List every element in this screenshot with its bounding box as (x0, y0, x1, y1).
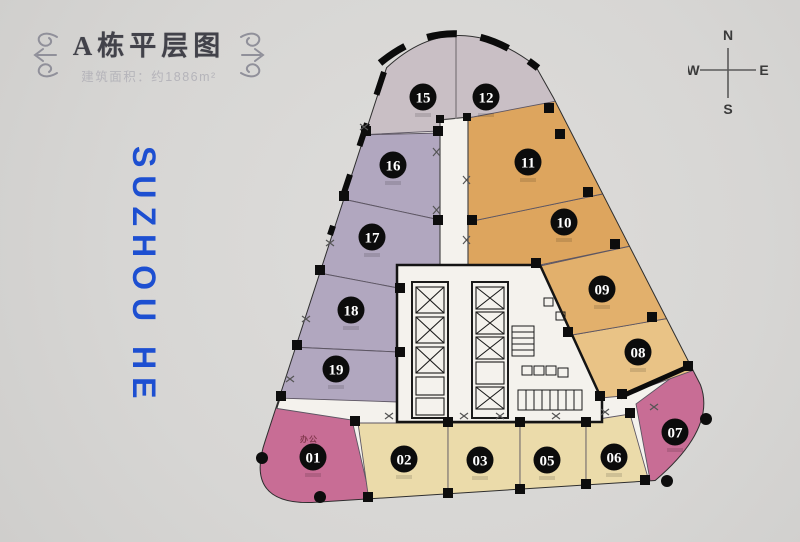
unit-number: 17 (365, 230, 381, 246)
unit-area-smudge (328, 385, 344, 389)
unit-number: 06 (607, 450, 623, 466)
unit-area-smudge (556, 238, 572, 242)
unit-area-smudge (305, 473, 321, 477)
unit-area-smudge (472, 476, 488, 480)
compass-east: E (759, 62, 768, 78)
unit-number: 05 (540, 453, 555, 469)
flourish-right-icon (238, 27, 272, 83)
unit-number: 03 (473, 453, 488, 469)
unit-number: 11 (521, 155, 535, 171)
unit-number: 01 (306, 450, 321, 466)
unit-number: 12 (479, 90, 494, 106)
unit-area-smudge (520, 178, 536, 182)
unit-number: 08 (631, 345, 646, 361)
unit-area-smudge (364, 253, 380, 257)
unit-area-smudge (385, 181, 401, 185)
unit-area-smudge (415, 113, 431, 117)
unit-area-smudge (478, 113, 494, 117)
unit-number: 02 (397, 452, 412, 468)
unit-number: 07 (668, 425, 684, 441)
unit-number: 15 (416, 90, 431, 106)
compass-north: N (723, 27, 733, 43)
floorplan-page: 办公 01020305060708091011121516171819 A栋平层… (0, 0, 800, 542)
unit-area-smudge (594, 305, 610, 309)
compass-icon: N S E W (688, 22, 772, 122)
page-subtitle: 建筑面积：约1886m² (64, 66, 234, 85)
page-title: A栋平层图 (64, 24, 234, 63)
compass-west: W (688, 62, 700, 78)
watermark-text: SUZHOU HE (125, 146, 162, 406)
unit-area-smudge (667, 448, 683, 452)
flourish-left-icon (26, 27, 60, 83)
unit-01-note: 办公 (300, 434, 318, 444)
unit-area-smudge (539, 476, 555, 480)
unit-area-smudge (606, 473, 622, 477)
unit-area-smudge (396, 475, 412, 479)
unit-number: 19 (329, 362, 344, 378)
unit-number: 09 (595, 282, 610, 298)
compass-south: S (723, 101, 732, 117)
unit-number: 18 (344, 303, 359, 319)
unit-number: 10 (557, 215, 572, 231)
unit-number: 16 (386, 158, 402, 174)
unit-area-smudge (343, 326, 359, 330)
title-block: A栋平层图 建筑面积：约1886m² (26, 24, 272, 85)
unit-area-smudge (630, 368, 646, 372)
